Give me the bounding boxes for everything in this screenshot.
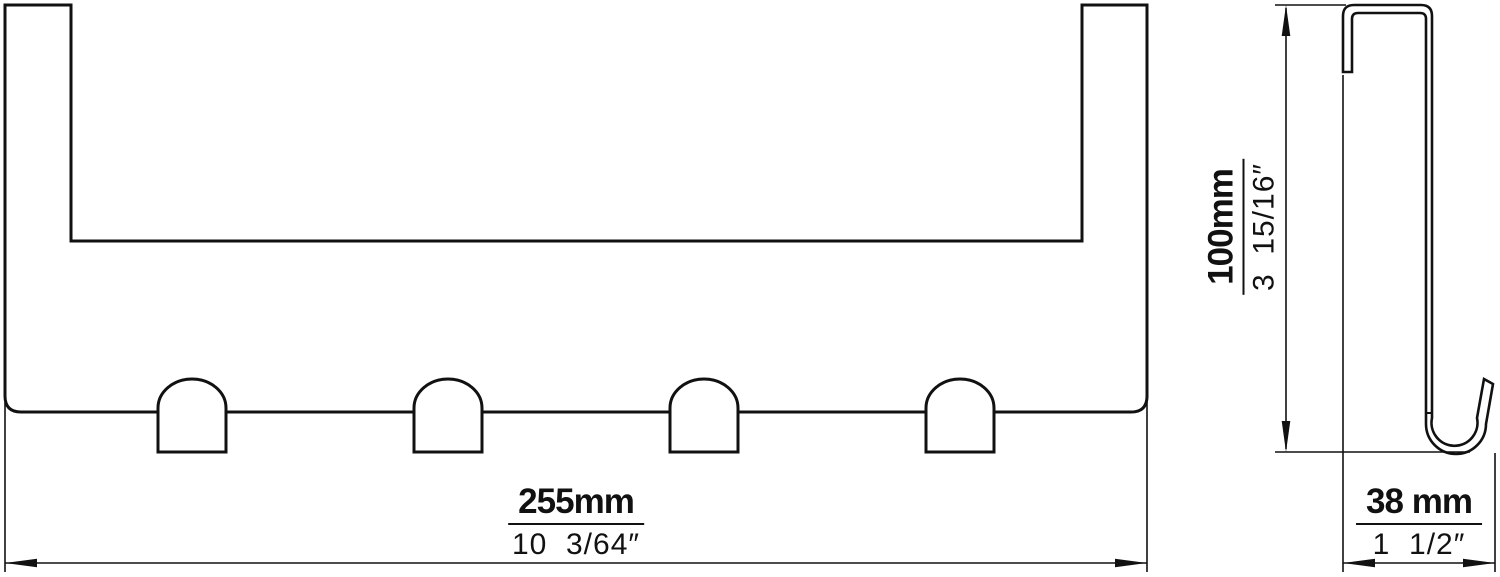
hook-dome-2 xyxy=(414,379,482,452)
depth-metric-value: 38 mm xyxy=(1356,484,1482,525)
hook-dome-1 xyxy=(158,379,226,452)
height-dimension-label: 100mm 3 15/16″ xyxy=(1204,159,1281,295)
height-dim-arrow-up xyxy=(1282,5,1291,36)
height-metric-value: 100mm xyxy=(1204,159,1245,295)
height-imperial-value: 3 15/16″ xyxy=(1245,163,1281,291)
side-profile-outline xyxy=(1343,5,1493,454)
width-dim-arrow-right xyxy=(1115,559,1147,568)
width-dim-arrow-left xyxy=(5,559,37,568)
width-imperial-value: 10 3/64″ xyxy=(512,525,640,561)
width-dimension-label: 255mm 10 3/64″ xyxy=(508,484,644,561)
width-metric-value: 255mm xyxy=(508,484,644,525)
hook-dome-4 xyxy=(926,379,994,452)
depth-dimension-label: 38 mm 1 1/2″ xyxy=(1356,484,1482,561)
height-dim-arrow-down xyxy=(1282,421,1291,452)
front-view-outline xyxy=(5,5,1147,412)
hook-dome-3 xyxy=(670,379,738,452)
depth-imperial-value: 1 1/2″ xyxy=(1373,525,1466,561)
technical-drawing: 255mm 10 3/64″ 100mm 3 15/16″ 38 mm 1 1/… xyxy=(0,0,1500,577)
